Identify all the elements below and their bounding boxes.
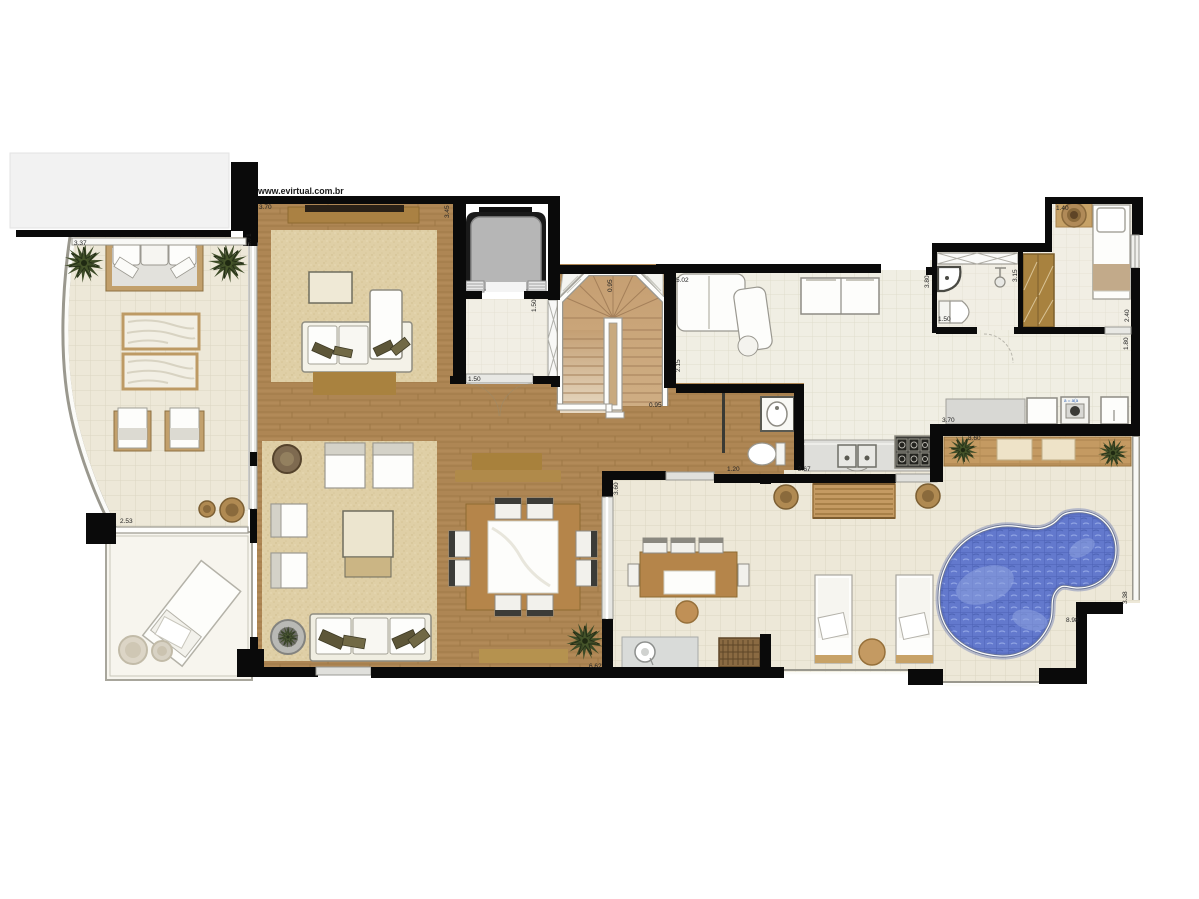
svg-text:2.15: 2.15 bbox=[675, 359, 682, 372]
svg-text:1.50: 1.50 bbox=[531, 299, 538, 312]
svg-text:2.67: 2.67 bbox=[798, 466, 811, 473]
svg-text:3.60: 3.60 bbox=[613, 482, 620, 495]
svg-text:2.53: 2.53 bbox=[120, 518, 133, 525]
svg-text:8.98: 8.98 bbox=[1066, 617, 1079, 624]
svg-text:1.50: 1.50 bbox=[468, 376, 481, 383]
svg-text:5.71: 5.71 bbox=[246, 233, 253, 246]
svg-text:a = a(a: a = a(a bbox=[1064, 398, 1079, 403]
svg-text:1.40: 1.40 bbox=[1056, 205, 1069, 212]
svg-text:3.38: 3.38 bbox=[1122, 591, 1129, 604]
svg-text:0.95: 0.95 bbox=[607, 279, 614, 292]
svg-text:6.62: 6.62 bbox=[589, 663, 602, 670]
svg-text:3.45: 3.45 bbox=[444, 205, 451, 218]
svg-text:3.15: 3.15 bbox=[1012, 269, 1019, 282]
svg-text:1.80: 1.80 bbox=[1123, 337, 1130, 350]
svg-text:5.02: 5.02 bbox=[676, 277, 689, 284]
svg-text:3.60: 3.60 bbox=[968, 435, 981, 442]
svg-text:3.80: 3.80 bbox=[924, 275, 931, 288]
svg-text:1.50: 1.50 bbox=[938, 316, 951, 323]
svg-text:3.70: 3.70 bbox=[942, 417, 955, 424]
svg-text:3.37: 3.37 bbox=[74, 240, 87, 247]
svg-text:2.40: 2.40 bbox=[1124, 309, 1131, 322]
svg-text:www.evirtual.com.br: www.evirtual.com.br bbox=[257, 186, 344, 196]
svg-text:3.70: 3.70 bbox=[259, 204, 272, 211]
svg-text:1.20: 1.20 bbox=[727, 466, 740, 473]
svg-text:0.95: 0.95 bbox=[649, 402, 662, 409]
